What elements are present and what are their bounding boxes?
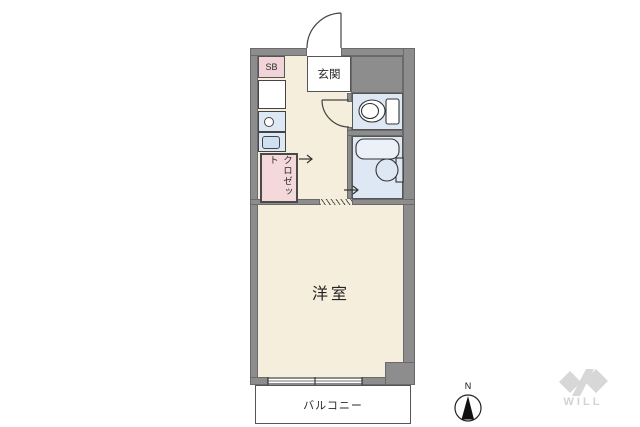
compass-north-label: N <box>459 380 477 391</box>
wall-pipe-space <box>351 56 403 93</box>
sliding-door-symbol <box>320 199 352 205</box>
wall <box>347 127 352 199</box>
wall <box>347 93 352 102</box>
closet: クロゼット <box>260 153 298 203</box>
bathroom-floor <box>352 136 403 199</box>
sink-icon <box>258 132 286 152</box>
refrigerator-space-icon <box>258 80 286 109</box>
window-icon <box>268 377 362 385</box>
will-logo-text: WILL <box>561 396 605 408</box>
stove-icon <box>258 111 286 132</box>
wall <box>250 48 258 385</box>
compass-icon <box>455 395 481 421</box>
shoe-box: SB <box>258 56 285 78</box>
floor-plan-canvas: SB クロゼット 玄関 洋室 バルコニー N WILL <box>0 0 640 427</box>
balcony: バルコニー <box>255 385 411 424</box>
wall <box>250 48 307 56</box>
burner-icon <box>264 117 274 127</box>
balcony-label: バルコニー <box>303 397 363 413</box>
main-room-label: 洋室 <box>296 280 366 304</box>
entrance-label: 玄関 <box>318 66 341 82</box>
entrance-area: 玄関 <box>307 56 351 92</box>
toilet-room-floor <box>352 93 403 130</box>
shoe-box-label: SB <box>265 62 277 72</box>
wall <box>403 48 415 385</box>
wall <box>250 377 268 385</box>
wall <box>347 130 403 136</box>
sink-basin-icon <box>262 136 280 149</box>
entrance-door-icon <box>307 13 341 48</box>
closet-label: クロゼット <box>265 155 293 201</box>
wall-corner-notch <box>385 362 415 385</box>
wall <box>352 199 415 205</box>
will-logo-icon <box>559 369 608 396</box>
